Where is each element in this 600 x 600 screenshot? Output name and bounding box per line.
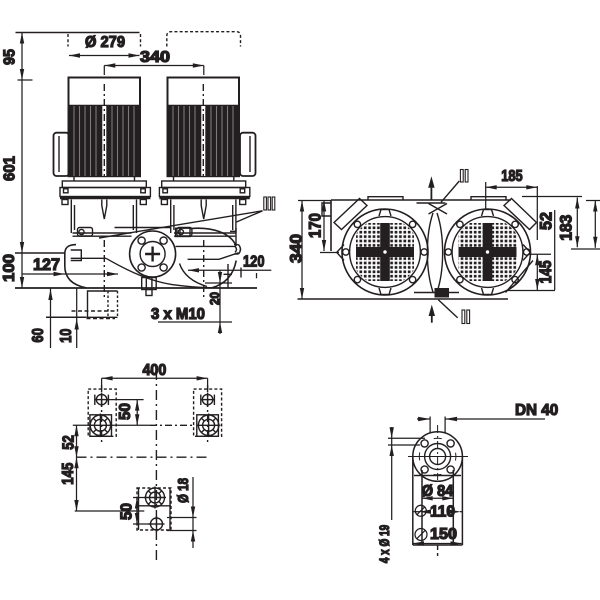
svg-text:50: 50 bbox=[117, 403, 134, 420]
svg-text:183: 183 bbox=[558, 215, 576, 241]
svg-text:60: 60 bbox=[30, 328, 47, 342]
svg-text:Ø 18: Ø 18 bbox=[175, 478, 192, 503]
svg-text:400: 400 bbox=[143, 362, 167, 379]
svg-text:145: 145 bbox=[60, 462, 77, 484]
svg-text:Ø 279: Ø 279 bbox=[85, 34, 125, 51]
svg-text:185: 185 bbox=[501, 168, 522, 185]
svg-text:DN 40: DN 40 bbox=[515, 402, 558, 419]
svg-text:601: 601 bbox=[2, 156, 19, 181]
svg-text:340: 340 bbox=[287, 234, 305, 263]
svg-text:50: 50 bbox=[119, 503, 136, 520]
svg-text:52: 52 bbox=[538, 212, 556, 230]
svg-text:10: 10 bbox=[58, 329, 75, 343]
svg-text:150: 150 bbox=[430, 526, 457, 543]
svg-text:127: 127 bbox=[33, 256, 60, 274]
svg-text:52: 52 bbox=[61, 435, 78, 450]
svg-text:20: 20 bbox=[207, 292, 222, 305]
svg-text:95: 95 bbox=[1, 49, 18, 65]
svg-text:100: 100 bbox=[1, 254, 18, 282]
svg-text:340: 340 bbox=[140, 49, 170, 66]
svg-text:120: 120 bbox=[243, 254, 265, 271]
svg-text:170: 170 bbox=[306, 213, 324, 238]
svg-text:3 x M10: 3 x M10 bbox=[151, 306, 205, 323]
svg-text:4 x Ø 19: 4 x Ø 19 bbox=[377, 525, 392, 563]
svg-text:145: 145 bbox=[537, 261, 555, 284]
